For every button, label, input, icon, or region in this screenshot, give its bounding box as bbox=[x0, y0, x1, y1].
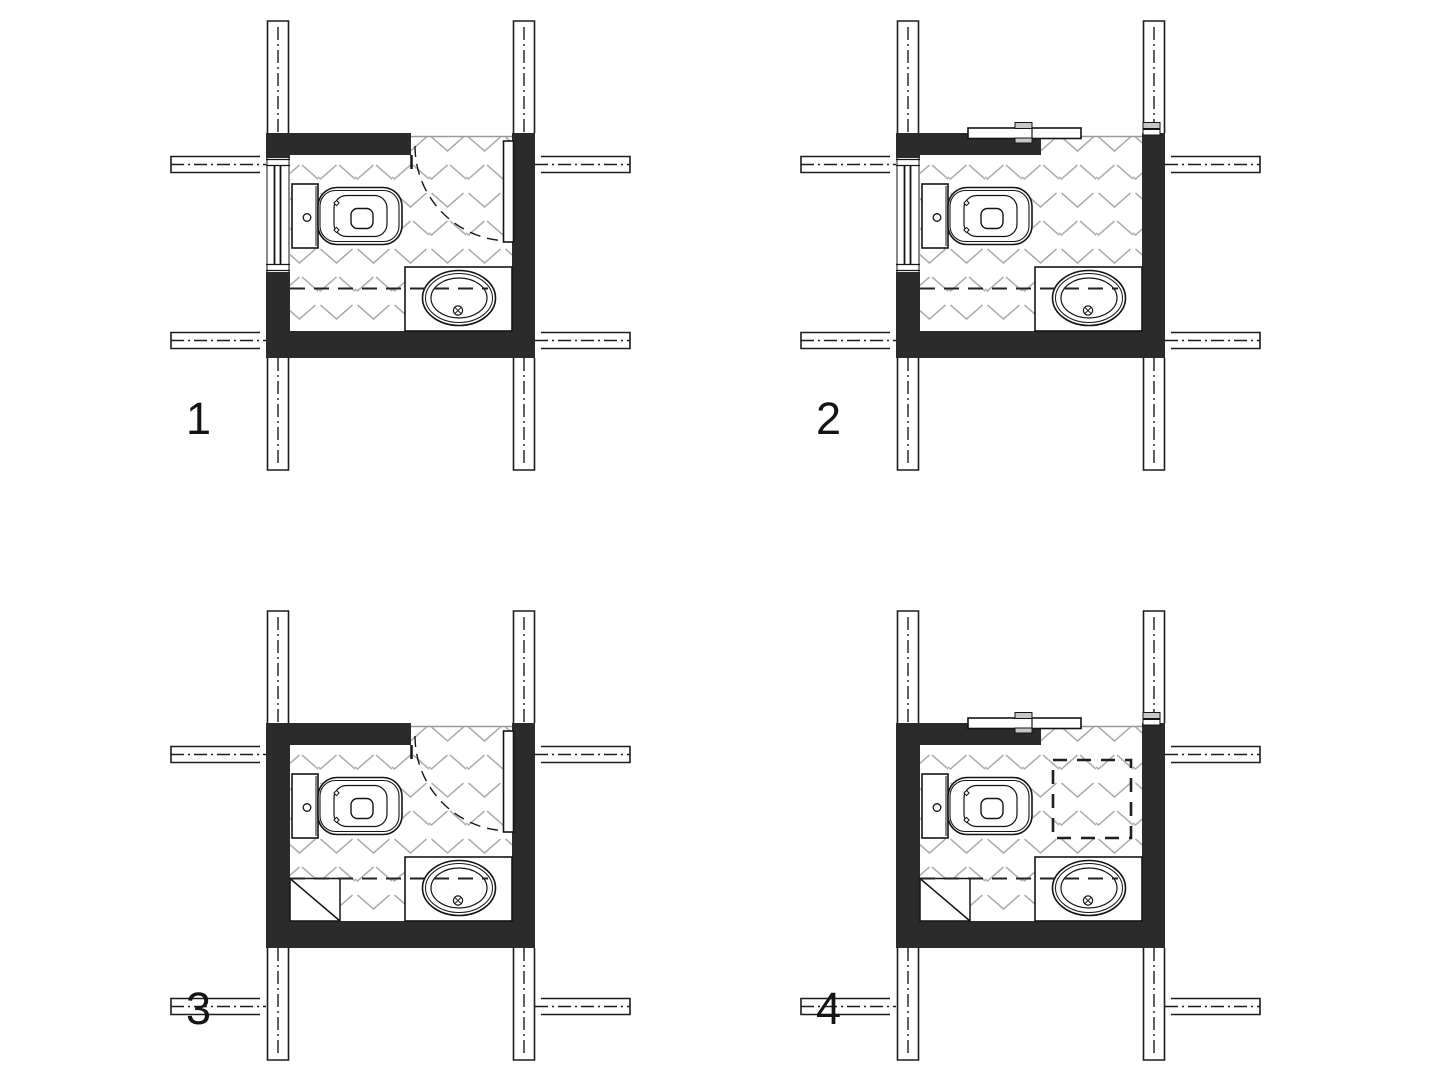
sliding-door-guide bbox=[1015, 138, 1032, 143]
sliding-door-leaf bbox=[968, 128, 1081, 139]
toilet-flush-button bbox=[303, 804, 311, 812]
plan-3: 3 bbox=[170, 610, 631, 1077]
plan-label: 3 bbox=[186, 983, 211, 1034]
sink-counter bbox=[405, 857, 512, 921]
basin bbox=[1053, 861, 1126, 916]
wall-bottom bbox=[896, 331, 1165, 358]
plan-1: 1 bbox=[170, 20, 631, 487]
axis-bracket-top-right bbox=[535, 747, 630, 763]
axis-bracket-top-right bbox=[1165, 157, 1260, 173]
plan-label: 1 bbox=[186, 393, 211, 444]
toilet-flush-button bbox=[933, 804, 941, 812]
wall-right bbox=[1142, 723, 1165, 948]
wall-right bbox=[1142, 133, 1165, 358]
sliding-door-jamb-cap bbox=[1143, 123, 1160, 129]
door-leaf bbox=[504, 141, 514, 242]
toilet-flush-button bbox=[933, 214, 941, 222]
sliding-door-leaf bbox=[968, 718, 1081, 729]
toilet-bowl-hole bbox=[981, 799, 1003, 819]
toilet bbox=[292, 774, 402, 838]
basin bbox=[423, 271, 496, 326]
toilet bbox=[922, 184, 1032, 248]
sliding-door-guide bbox=[1015, 728, 1032, 733]
plan-label: 2 bbox=[816, 393, 841, 444]
axis-bracket-top-left bbox=[801, 157, 896, 173]
axis-bracket-top-left bbox=[171, 157, 266, 173]
toilet-bowl-hole bbox=[351, 209, 373, 229]
toilet-bowl-hole bbox=[351, 799, 373, 819]
window bbox=[896, 158, 920, 272]
sliding-door-guide bbox=[1015, 123, 1032, 129]
sliding-door-jamb-cap bbox=[1143, 130, 1160, 136]
wall-bottom bbox=[266, 331, 535, 358]
corner-triangle-element bbox=[290, 879, 340, 922]
basin bbox=[1053, 271, 1126, 326]
toilet bbox=[292, 184, 402, 248]
wall-bottom bbox=[266, 921, 535, 948]
axis-bracket-top-right bbox=[535, 157, 630, 173]
wall-right bbox=[512, 133, 535, 358]
sink-counter bbox=[405, 267, 512, 331]
plan-label: 4 bbox=[816, 983, 841, 1034]
sliding-door-jamb-cap bbox=[1143, 713, 1160, 719]
sink-counter bbox=[1035, 267, 1142, 331]
plan-2: 2 bbox=[800, 20, 1261, 487]
sliding-door-jamb-cap bbox=[1143, 720, 1160, 726]
axis-bracket-top-right bbox=[1165, 747, 1260, 763]
corner-triangle-element bbox=[920, 879, 970, 922]
window bbox=[266, 158, 290, 272]
toilet-bowl-hole bbox=[981, 209, 1003, 229]
sink-counter bbox=[1035, 857, 1142, 921]
axis-bracket-top-left bbox=[171, 747, 266, 763]
basin bbox=[423, 861, 496, 916]
wall-left bbox=[266, 723, 290, 948]
wall-left bbox=[896, 723, 920, 948]
axis-row-bottom bbox=[801, 999, 1260, 1015]
toilet bbox=[922, 774, 1032, 838]
sliding-door-guide bbox=[1015, 713, 1032, 719]
wall-right bbox=[512, 723, 535, 948]
toilet-flush-button bbox=[303, 214, 311, 222]
axis-row-bottom bbox=[171, 999, 630, 1015]
door-leaf bbox=[504, 731, 514, 832]
wall-bottom bbox=[896, 921, 1165, 948]
plan-4: 4 bbox=[800, 610, 1261, 1077]
plans-canvas: 1 bbox=[0, 0, 1433, 1077]
